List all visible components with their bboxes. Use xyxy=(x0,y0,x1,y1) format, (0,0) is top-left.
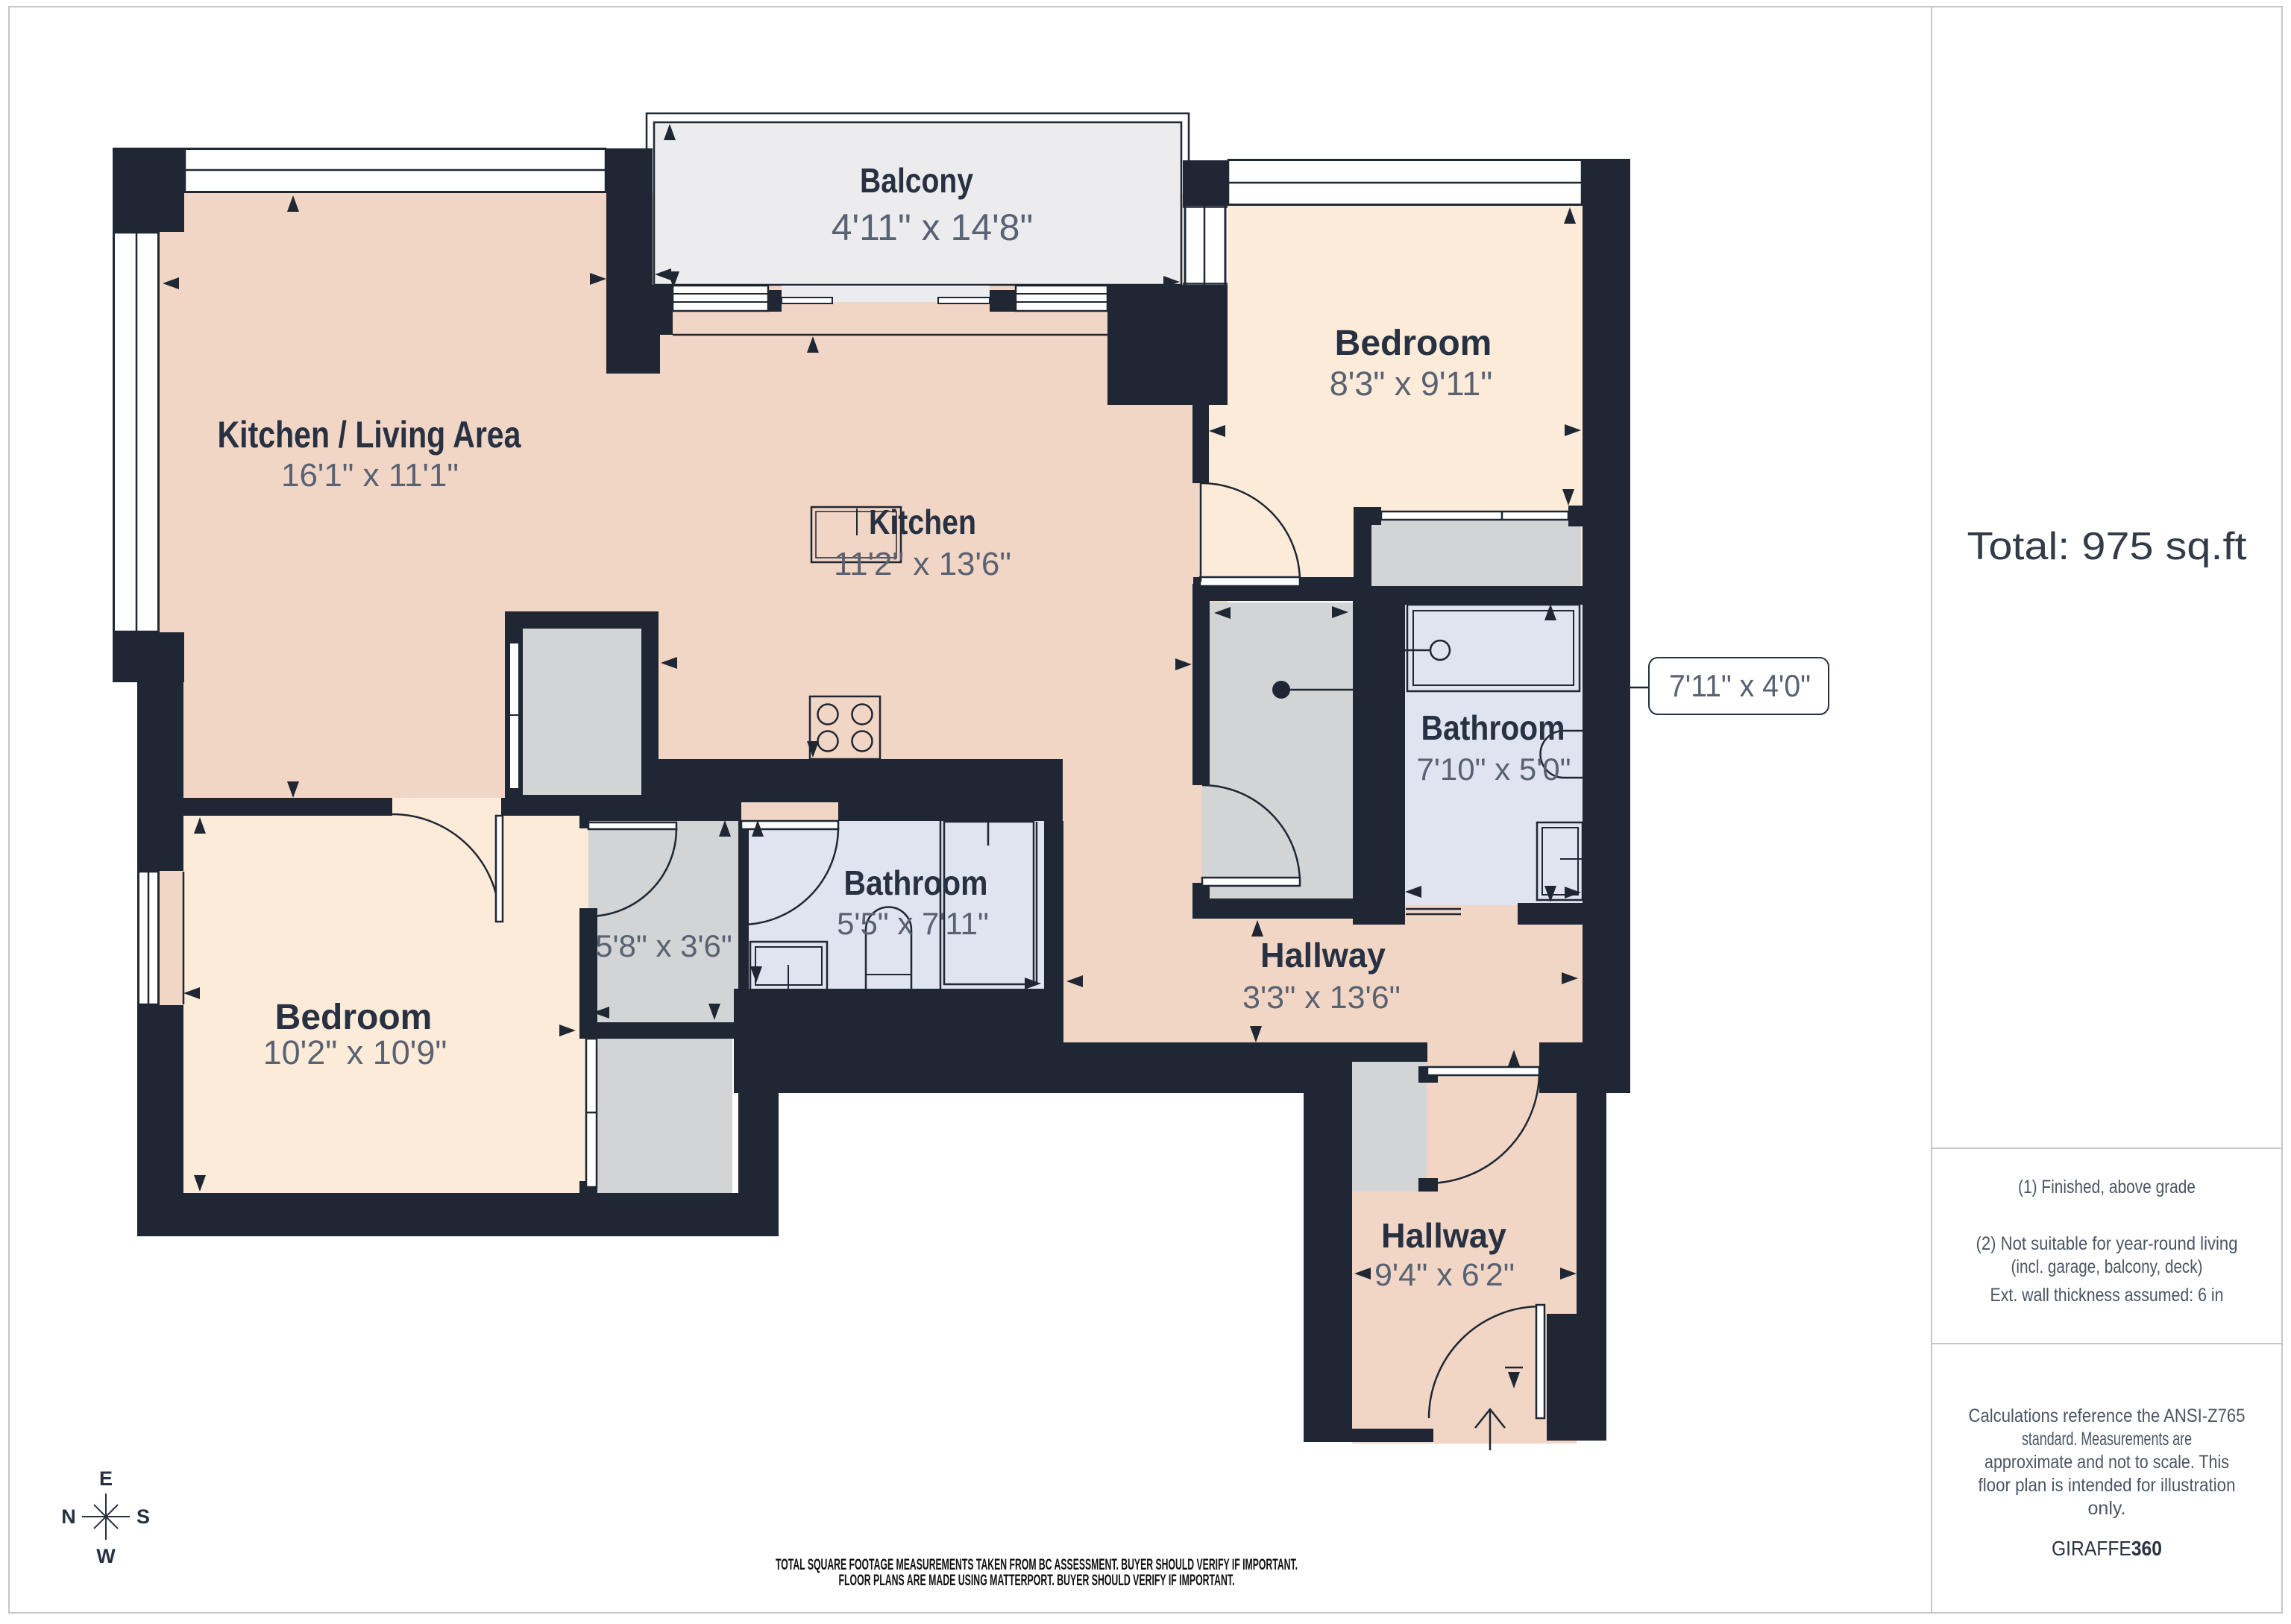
svg-text:7'10" x 5'0": 7'10" x 5'0" xyxy=(1417,752,1571,787)
svg-text:3'3" x 13'6": 3'3" x 13'6" xyxy=(1242,980,1401,1016)
svg-text:Bedroom: Bedroom xyxy=(1335,324,1492,363)
svg-text:Total: 975 sq.ft: Total: 975 sq.ft xyxy=(1967,525,2248,568)
svg-text:S: S xyxy=(136,1505,150,1528)
svg-text:(1) Finished, above grade: (1) Finished, above grade xyxy=(2018,1177,2196,1197)
svg-text:8'3" x 9'11": 8'3" x 9'11" xyxy=(1330,365,1492,403)
svg-text:E: E xyxy=(99,1467,113,1490)
svg-text:W: W xyxy=(96,1545,116,1567)
svg-text:FLOOR PLANS ARE MADE USING MAT: FLOOR PLANS ARE MADE USING MATTERPORT. B… xyxy=(839,1572,1235,1589)
svg-text:7'11" x 4'0": 7'11" x 4'0" xyxy=(1669,668,1811,703)
svg-text:only.: only. xyxy=(2088,1498,2126,1519)
svg-text:5'8" x 3'6": 5'8" x 3'6" xyxy=(595,928,732,963)
svg-text:floor plan is intended for ill: floor plan is intended for illustration xyxy=(1979,1475,2236,1496)
svg-text:9'4" x 6'2": 9'4" x 6'2" xyxy=(1374,1257,1515,1293)
svg-text:TOTAL SQUARE FOOTAGE MEASUREME: TOTAL SQUARE FOOTAGE MEASUREMENTS TAKEN … xyxy=(776,1556,1298,1573)
svg-text:16'1" x 11'1": 16'1" x 11'1" xyxy=(281,457,459,494)
svg-text:GIRAFFE360: GIRAFFE360 xyxy=(2052,1537,2162,1560)
svg-text:Hallway: Hallway xyxy=(1381,1216,1506,1255)
svg-text:10'2" x 10'9": 10'2" x 10'9" xyxy=(263,1033,447,1071)
svg-text:Bathroom: Bathroom xyxy=(844,863,988,902)
svg-text:standard. Measurements are: standard. Measurements are xyxy=(2022,1429,2192,1450)
svg-text:Bedroom: Bedroom xyxy=(275,998,433,1037)
svg-text:(incl. garage, balcony, deck): (incl. garage, balcony, deck) xyxy=(2011,1256,2203,1277)
svg-text:Balcony: Balcony xyxy=(860,161,973,200)
svg-text:Calculations reference the ANS: Calculations reference the ANSI-Z765 xyxy=(1969,1406,2246,1426)
svg-text:Bathroom: Bathroom xyxy=(1421,708,1565,747)
svg-text:(2) Not suitable for year-roun: (2) Not suitable for year-round living xyxy=(1976,1233,2238,1254)
svg-text:Ext. wall thickness assumed: 6: Ext. wall thickness assumed: 6 in xyxy=(1990,1285,2224,1306)
svg-text:Kitchen / Living Area: Kitchen / Living Area xyxy=(218,414,522,456)
svg-text:Hallway: Hallway xyxy=(1260,936,1386,975)
svg-text:5'5" x 7'11": 5'5" x 7'11" xyxy=(837,906,989,941)
svg-text:Kitchen: Kitchen xyxy=(869,503,976,541)
svg-text:N: N xyxy=(61,1505,76,1528)
svg-text:approximate and not to scale.: approximate and not to scale. This xyxy=(1984,1452,2229,1473)
svg-text:11'2" x 13'6": 11'2" x 13'6" xyxy=(834,546,1011,582)
svg-text:4'11" x 14'8": 4'11" x 14'8" xyxy=(832,207,1034,248)
